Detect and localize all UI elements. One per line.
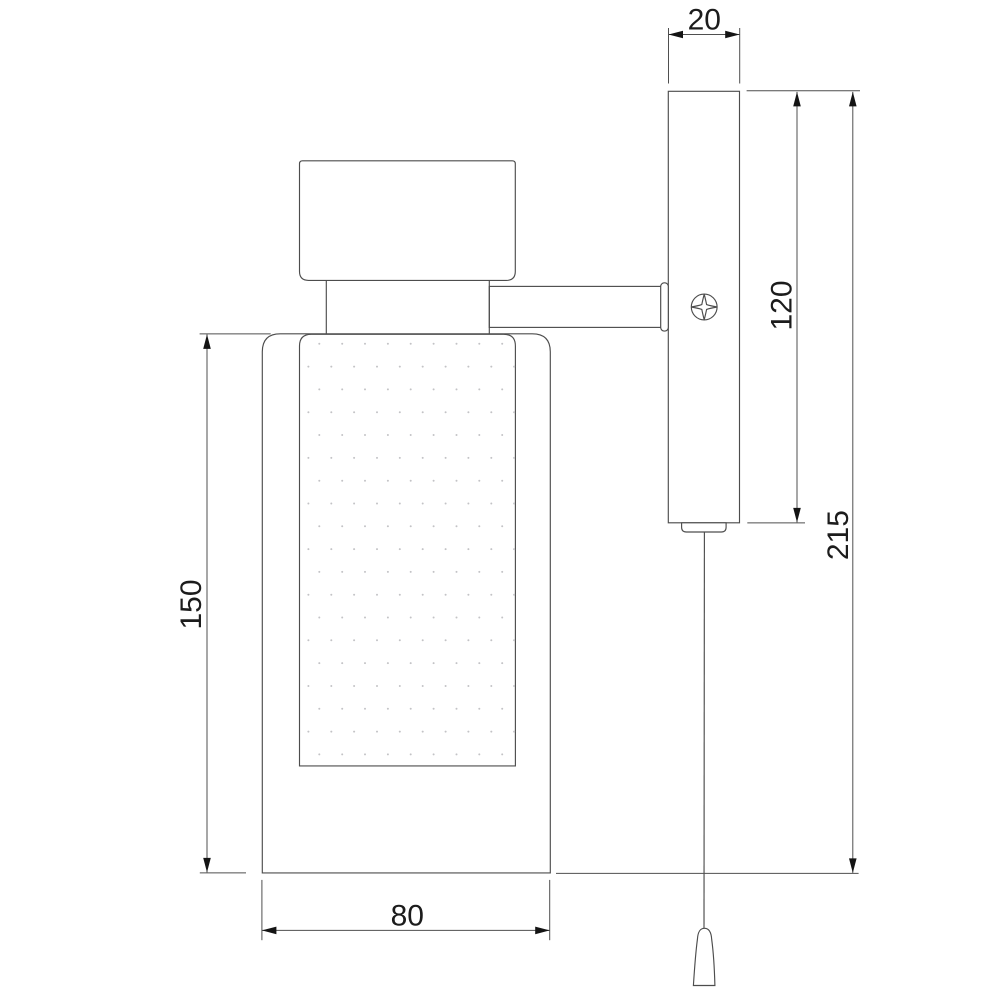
svg-text:150: 150	[175, 579, 208, 629]
svg-text:80: 80	[391, 900, 424, 933]
svg-text:215: 215	[822, 510, 855, 560]
svg-text:120: 120	[766, 280, 799, 330]
svg-text:20: 20	[688, 4, 721, 37]
